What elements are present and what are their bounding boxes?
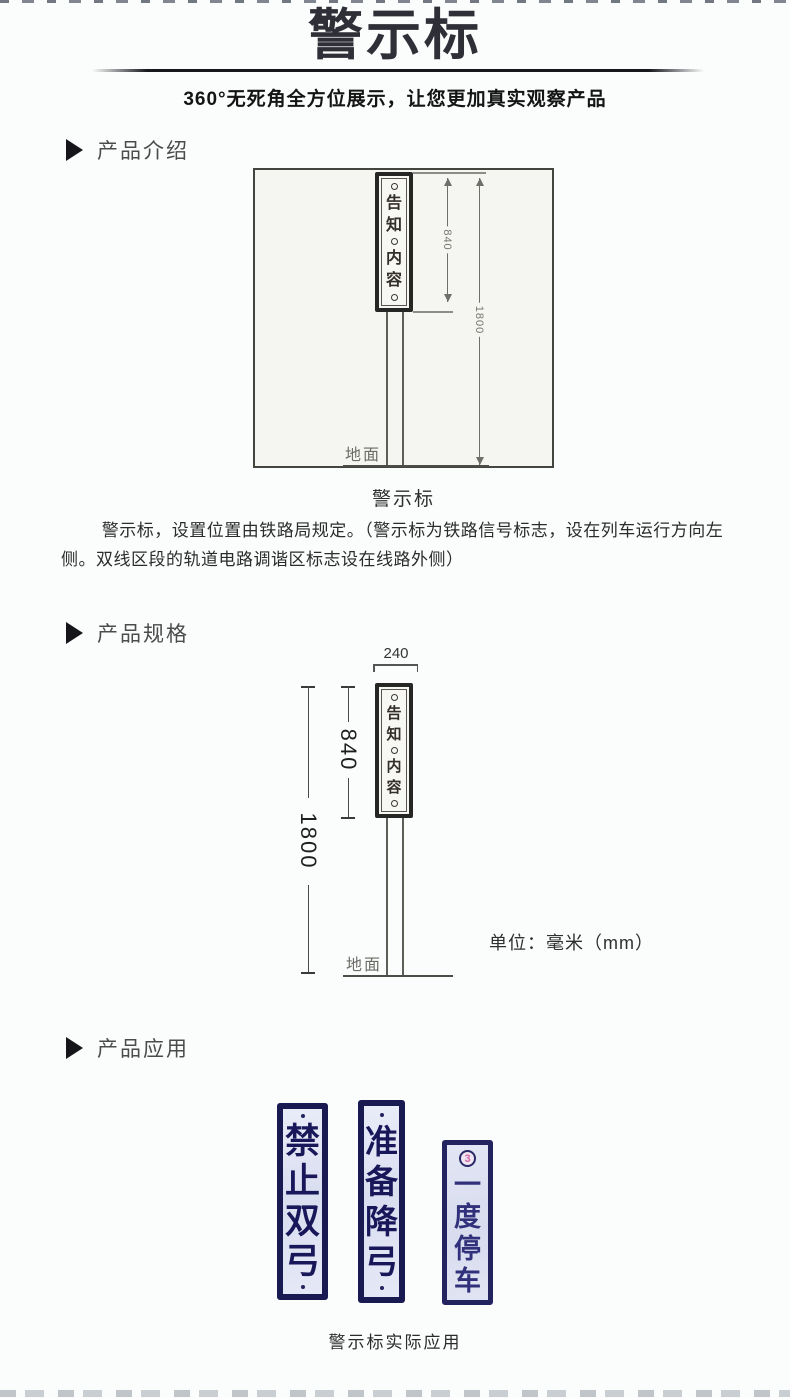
dimension-label-840: 840 — [440, 226, 454, 253]
arrowhead-icon — [444, 178, 452, 186]
bottom-cutoff-decoration — [0, 1390, 790, 1397]
sign-char: 告 — [386, 705, 401, 722]
sign-char: 降 — [365, 1205, 398, 1238]
application-caption: 警示标实际应用 — [0, 1328, 790, 1353]
section-header-specs: 产品规格 — [66, 618, 189, 648]
sign-char: 弓 — [365, 1245, 398, 1278]
notice-sign-board: 告 知 内 容 — [375, 172, 413, 312]
sign-char: 备 — [365, 1165, 398, 1198]
ground-label: 地面 — [346, 951, 382, 975]
ground-line — [343, 465, 489, 467]
notice-sign-board: 告 知 内 容 — [375, 683, 413, 818]
ground-line — [343, 975, 453, 977]
section-label: 产品规格 — [97, 618, 189, 648]
dimension-tick — [417, 664, 419, 672]
sign-char: 告 — [386, 195, 402, 212]
extension-line — [413, 172, 486, 174]
section-header-application: 产品应用 — [66, 1033, 189, 1063]
intro-paragraph: 警示标，设置位置由铁路局规定。（警示标为铁路信号标志，设在列车运行方向左侧。双线… — [61, 516, 739, 574]
unit-note: 单位：毫米（mm） — [489, 929, 654, 955]
triangle-bullet-icon — [66, 622, 83, 644]
mount-hole — [301, 1285, 305, 1289]
arrowhead-icon — [444, 294, 452, 302]
sign-char: 弓 — [285, 1244, 320, 1279]
ground-label: 地面 — [345, 441, 381, 465]
mount-hole — [391, 694, 398, 701]
title-underline — [92, 69, 704, 72]
triangle-bullet-icon — [66, 1037, 83, 1059]
dimension-label-1800: 1800 — [472, 303, 486, 337]
sign-char: 准 — [365, 1125, 398, 1158]
sign-char: 内 — [386, 250, 402, 267]
sign-char: 一 — [454, 1172, 481, 1199]
sign-face: 告 知 内 容 — [381, 689, 407, 812]
dimension-tick — [341, 817, 355, 819]
circled-number-badge: 3 — [459, 1150, 476, 1167]
product-detail-page: 警示标 360°无死角全方位展示，让您更加真实观察产品 产品介绍 告 知 内 容… — [0, 0, 790, 1398]
mount-hole — [391, 800, 398, 807]
dimension-line-840 — [348, 778, 349, 818]
arrowhead-icon — [476, 457, 484, 465]
sign-char: 度 — [454, 1204, 481, 1231]
dimension-line-840 — [348, 686, 349, 722]
mount-hole — [380, 1286, 384, 1290]
section-label: 产品应用 — [97, 1033, 189, 1063]
photo-sign-zhunbei-jianggong: 准 备 降 弓 — [358, 1100, 405, 1303]
photo-sign-yidu-tingche: 3 一 度 停 车 — [442, 1140, 493, 1305]
sign-post — [386, 818, 404, 975]
drawing-caption: 警示标 — [253, 484, 554, 511]
sign-post — [386, 312, 404, 465]
dimension-label-240: 240 — [367, 645, 425, 662]
section-label: 产品介绍 — [97, 135, 189, 165]
dimension-tick — [301, 972, 315, 974]
dimension-line-1800 — [308, 686, 309, 798]
section-header-intro: 产品介绍 — [66, 135, 189, 165]
dimension-tick — [373, 664, 375, 672]
photo-sign-jinzhi-shuanggong: 禁 止 双 弓 — [277, 1103, 328, 1300]
sign-char: 车 — [454, 1268, 481, 1295]
sign-char: 容 — [386, 272, 402, 289]
mount-hole — [301, 1114, 305, 1118]
extension-line — [413, 311, 453, 313]
sign-char: 止 — [285, 1164, 320, 1199]
sign-char: 双 — [285, 1204, 320, 1239]
dimension-label-840: 840 — [335, 729, 361, 772]
page-subtitle: 360°无死角全方位展示，让您更加真实观察产品 — [0, 84, 790, 111]
sign-char: 禁 — [285, 1124, 320, 1159]
sign-char: 内 — [386, 758, 401, 775]
triangle-bullet-icon — [66, 139, 83, 161]
dimension-label-1800: 1800 — [295, 813, 321, 870]
sign-char: 容 — [386, 779, 401, 796]
mount-hole — [391, 238, 398, 245]
mount-hole — [391, 183, 398, 190]
mount-hole — [380, 1113, 384, 1117]
mount-hole — [391, 747, 398, 754]
dimension-line-1800 — [308, 885, 309, 973]
intro-technical-drawing: 告 知 内 容 840 1800 地面 — [253, 168, 554, 468]
sign-char: 停 — [454, 1236, 481, 1263]
sign-face: 告 知 内 容 — [381, 178, 407, 306]
arrowhead-icon — [476, 178, 484, 186]
dimension-line-240 — [373, 664, 418, 666]
page-title: 警示标 — [0, 2, 790, 68]
mount-hole — [391, 294, 398, 301]
sign-char: 知 — [386, 726, 401, 743]
sign-char: 知 — [386, 217, 402, 234]
